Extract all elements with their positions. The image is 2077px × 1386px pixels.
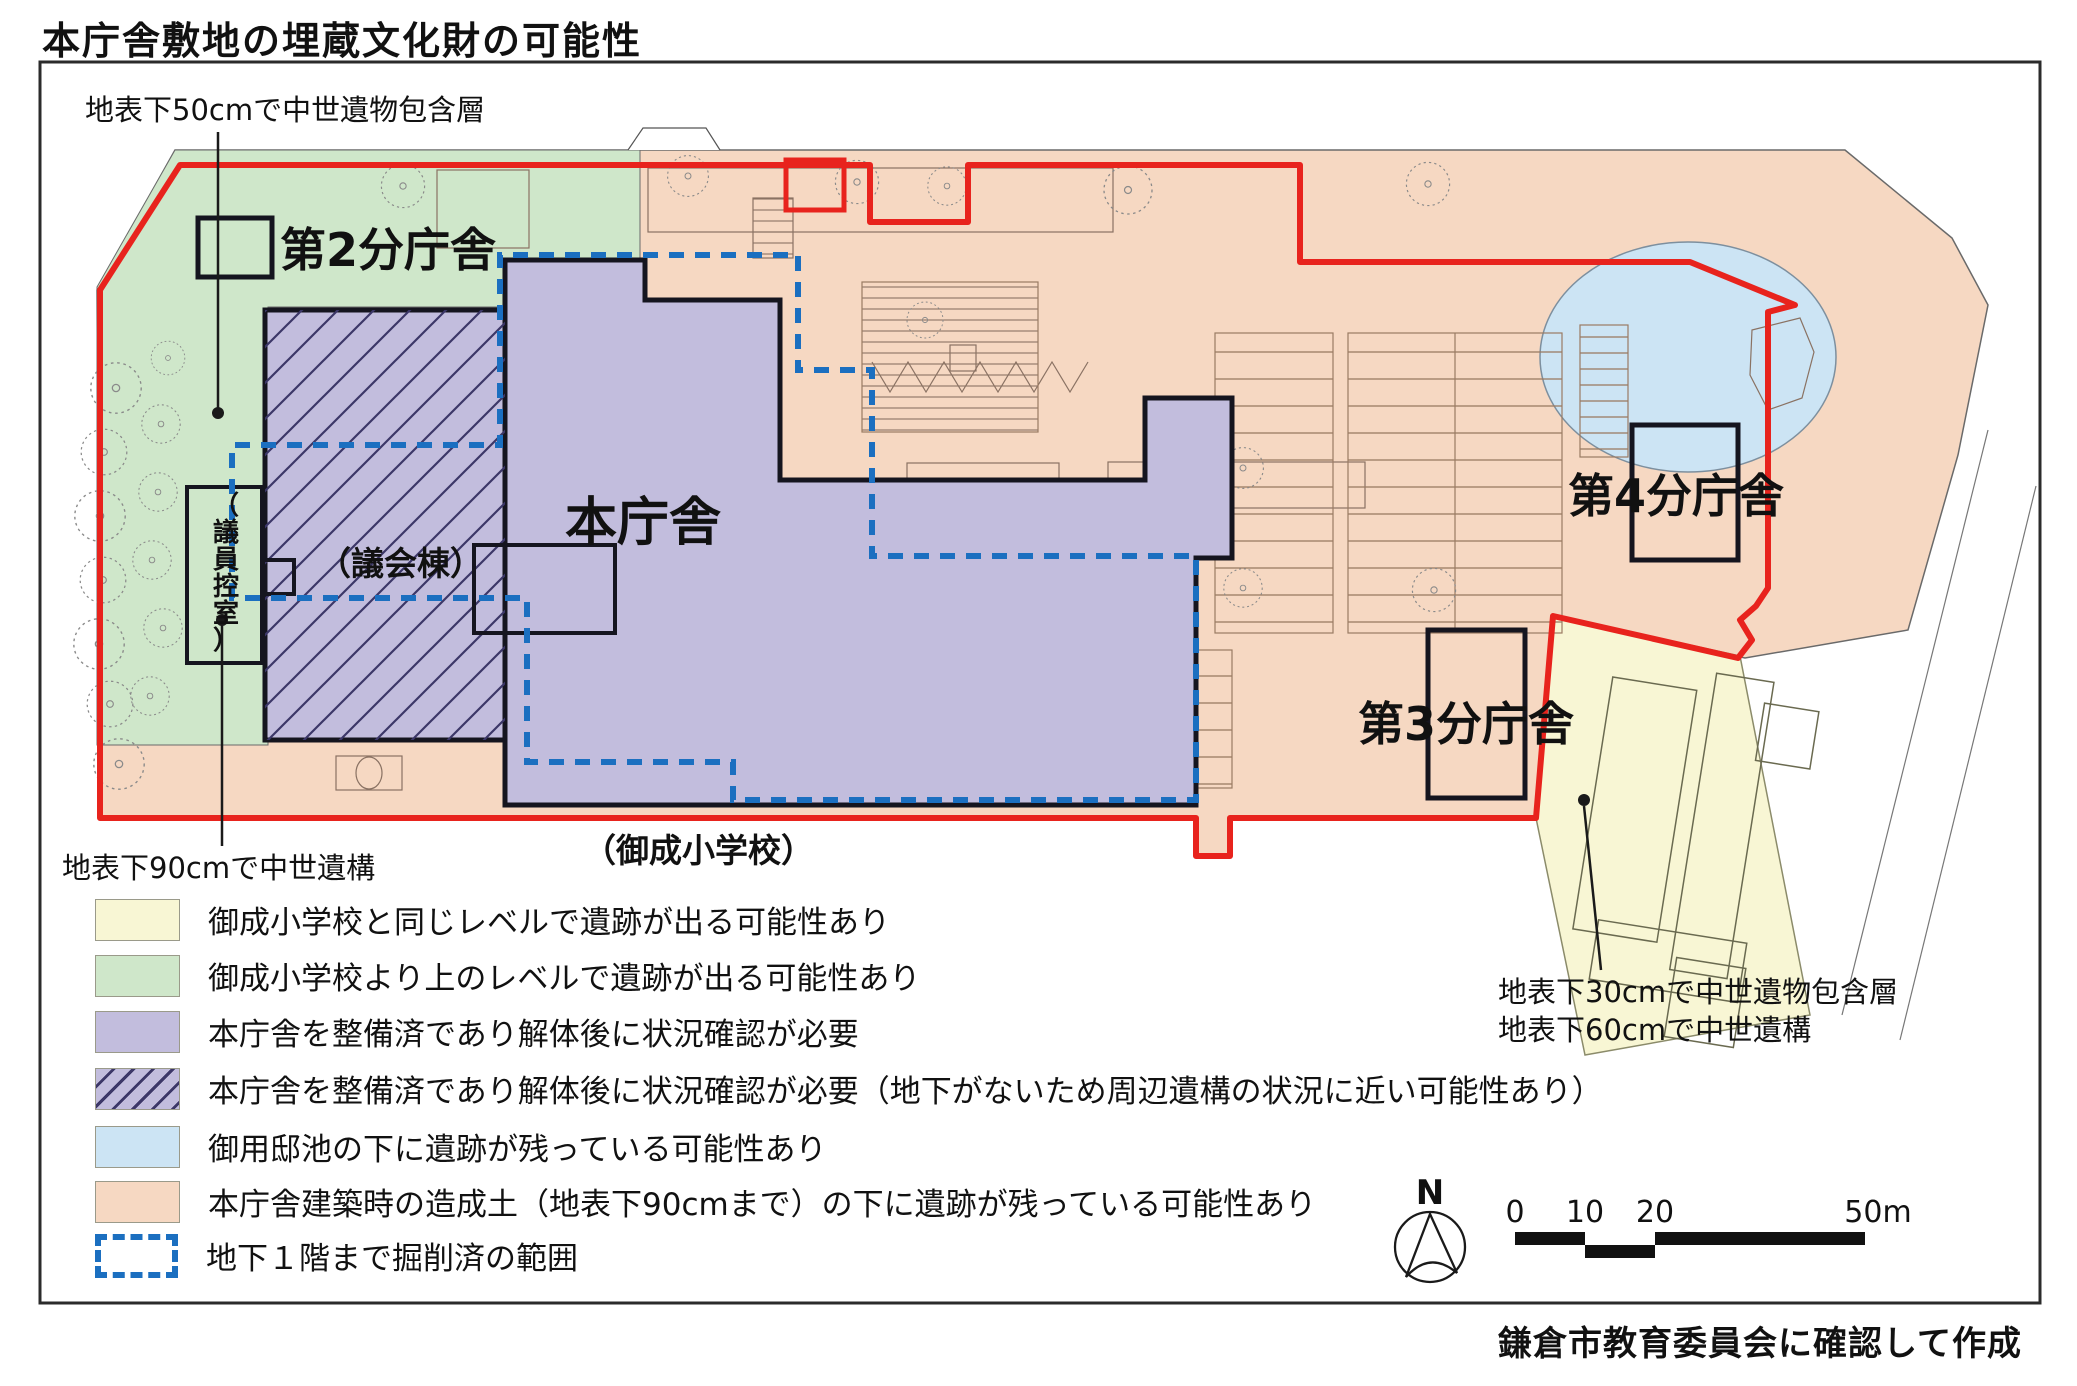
credit-note: 鎌倉市教育委員会に確認して作成: [1498, 1316, 2022, 1365]
legend-item-purple: 本庁舎を整備済であり解体後に状況確認が必要: [95, 1009, 859, 1054]
label-council-hall: （議会棟）: [318, 544, 483, 583]
annotation-sw: 地表下90cmで中世遺構: [62, 851, 375, 885]
legend-item-excavated: 地下１階まで掘削済の範囲: [95, 1233, 578, 1278]
legend-label: 本庁舎建築時の造成土（地表下90cmまで）の下に遺跡が残っている可能性あり: [208, 1179, 1316, 1224]
svg-text:室: 室: [213, 598, 239, 629]
legend-swatch-purple: [95, 1011, 180, 1053]
site-plan-figure: 本庁舎敷地の埋蔵文化財の可能性: [0, 0, 2077, 1386]
legend-item-green: 御成小学校より上のレベルで遺跡が出る可能性あり: [95, 953, 920, 998]
legend-swatch-excavated-dashed: [95, 1234, 178, 1278]
legend-item-yellow: 御成小学校と同じレベルで遺跡が出る可能性あり: [95, 897, 890, 942]
svg-text:員: 員: [213, 545, 239, 575]
legend-swatch-yellow: [95, 899, 180, 941]
annotation-nw: 地表下50cmで中世遺物包含層: [85, 93, 485, 127]
scale-tick-20: 20: [1636, 1195, 1674, 1230]
legend-label: 地下１階まで掘削済の範囲: [206, 1233, 578, 1278]
legend-swatch-purple-hatched: [95, 1068, 180, 1110]
svg-text:控: 控: [213, 572, 239, 602]
label-school: （御成小学校）: [583, 831, 814, 870]
legend-item-purple-hatched: 本庁舎を整備済であり解体後に状況確認が必要（地下がないため周辺遺構の状況に近い可…: [95, 1066, 1603, 1111]
annotation-se-line1: 地表下30cmで中世遺物包含層: [1498, 975, 1898, 1009]
hatch-overlay: [265, 310, 505, 740]
legend-swatch-salmon: [95, 1181, 180, 1223]
legend-swatch-blue: [95, 1126, 180, 1168]
legend-label: 本庁舎を整備済であり解体後に状況確認が必要（地下がないため周辺遺構の状況に近い可…: [208, 1066, 1603, 1111]
legend-label: 本庁舎を整備済であり解体後に状況確認が必要: [208, 1009, 859, 1054]
svg-text:）: ）: [213, 626, 239, 656]
svg-text:議: 議: [213, 517, 239, 548]
label-main-building: 本庁舎: [565, 493, 721, 553]
legend-label: 御成小学校より上のレベルで遺跡が出る可能性あり: [208, 953, 920, 998]
svg-text:（: （: [213, 491, 239, 521]
legend-item-blue: 御用邸池の下に遺跡が残っている可能性あり: [95, 1124, 826, 1169]
label-branch4: 第4分庁舎: [1568, 469, 1784, 523]
legend-label: 御成小学校と同じレベルで遺跡が出る可能性あり: [208, 897, 890, 942]
legend-label: 御用邸池の下に遺跡が残っている可能性あり: [208, 1124, 826, 1169]
annotation-se-line2: 地表下60cmで中世遺構: [1498, 1013, 1811, 1047]
label-branch2: 第2分庁舎: [280, 223, 496, 277]
legend-swatch-green: [95, 955, 180, 997]
legend-item-salmon: 本庁舎建築時の造成土（地表下90cmまで）の下に遺跡が残っている可能性あり: [95, 1179, 1316, 1224]
north-label: N: [1416, 1173, 1444, 1213]
scale-tick-50m: 50m: [1844, 1195, 1911, 1230]
label-council-room-vertical: （ 議 員 控 室 ）: [213, 491, 239, 656]
scale-tick-10: 10: [1566, 1195, 1604, 1230]
scale-tick-0: 0: [1505, 1195, 1524, 1230]
label-branch3: 第3分庁舎: [1358, 697, 1574, 751]
